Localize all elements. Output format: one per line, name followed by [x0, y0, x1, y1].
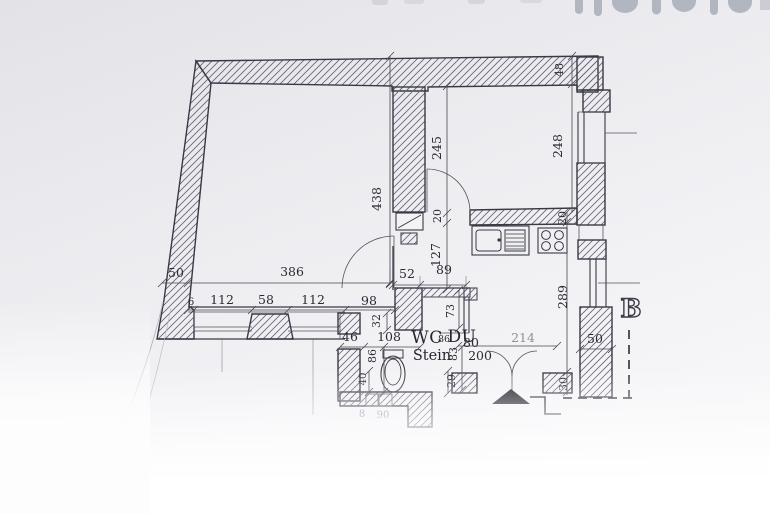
dimension-label: 200 [468, 348, 492, 363]
stove-icon [538, 228, 567, 253]
section-marker-b: B [620, 294, 641, 323]
dimension-label: 20 [556, 211, 569, 225]
dimension-label: 30 [557, 377, 570, 391]
dimension-label: 40 [358, 373, 369, 386]
dimension-label: 50 [168, 265, 184, 280]
dimension-label: 8 [359, 409, 365, 420]
dimension-label: 108 [377, 329, 401, 344]
kitchen-sink-icon [472, 226, 529, 255]
dimension-label: 90 [377, 410, 390, 421]
dimension-label: 52 [399, 266, 415, 281]
dimension-label: 46 [342, 329, 358, 344]
dimension-label: 73 [444, 304, 457, 318]
dimension-label: 29 [445, 374, 458, 388]
floor-plan-svg: WC 86 DU Stein B 50386611258112984382452… [0, 0, 770, 514]
entrance-arrow-icon [492, 389, 530, 404]
dimension-label: 86 [366, 349, 379, 363]
dimension-label: 6 [188, 296, 195, 308]
dimension-label: 58 [258, 292, 274, 307]
dimension-label: 245 [429, 136, 444, 160]
stein-label: Stein [413, 348, 451, 364]
dimension-label: 83 [447, 347, 460, 361]
dimension-label: 438 [369, 187, 384, 211]
toilet-icon [381, 350, 405, 392]
dimension-label: 32 [370, 314, 383, 328]
dimension-label: 98 [361, 293, 377, 308]
dimension-label: 20 [431, 209, 444, 223]
walls [157, 56, 612, 427]
dimension-label: 89 [436, 262, 452, 277]
dimension-label: 289 [555, 285, 570, 309]
dimension-label: 112 [210, 292, 234, 307]
dimension-lines [158, 52, 616, 415]
dimension-label: 386 [280, 264, 304, 279]
dimension-label: 248 [550, 134, 565, 158]
cutoff-header-text-artifact [372, 0, 770, 16]
scanned-floor-plan-page: WC 86 DU Stein B 50386611258112984382452… [0, 0, 770, 514]
dimension-label: 214 [511, 330, 535, 345]
dimension-label: 112 [301, 292, 325, 307]
dimension-label: 48 [553, 63, 566, 77]
dimension-label: 50 [587, 331, 603, 346]
